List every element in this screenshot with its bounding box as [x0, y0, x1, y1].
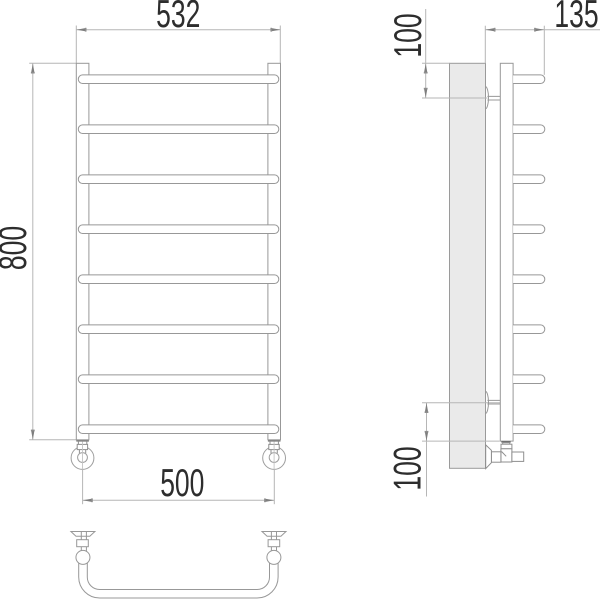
svg-text:500: 500: [160, 462, 204, 505]
svg-text:532: 532: [156, 0, 200, 36]
svg-text:100: 100: [387, 446, 430, 490]
svg-text:800: 800: [0, 226, 36, 270]
svg-text:135: 135: [554, 0, 598, 36]
svg-text:100: 100: [387, 13, 430, 57]
